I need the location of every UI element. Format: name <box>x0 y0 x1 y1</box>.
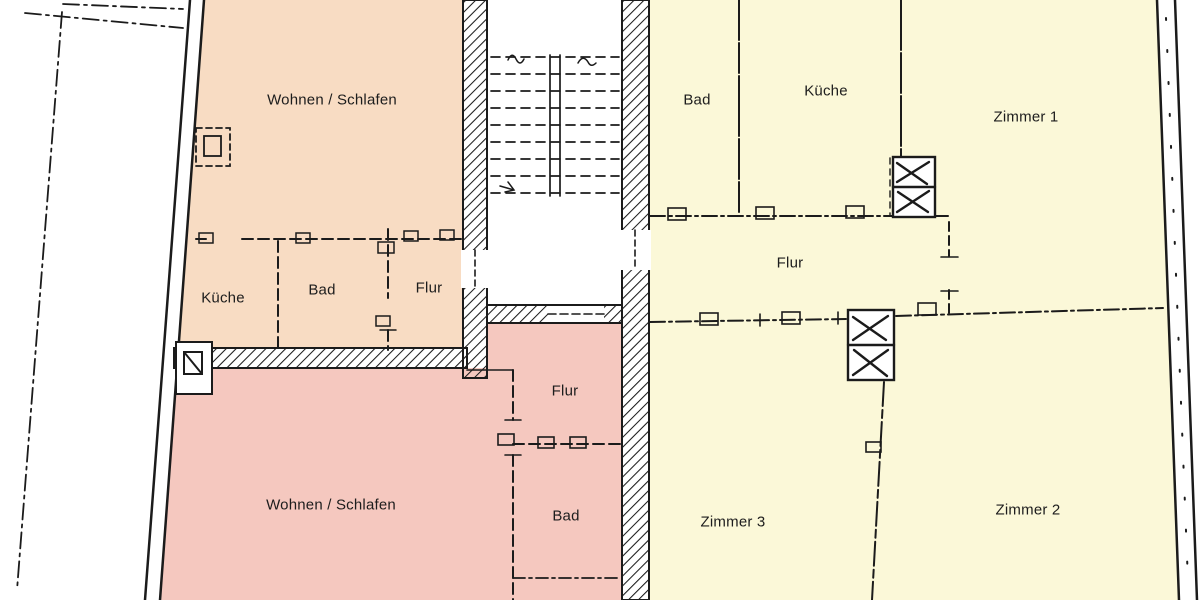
room-label-zimmer-1: Zimmer 1 <box>994 109 1059 126</box>
room-label-kueche-right: Küche <box>804 83 848 100</box>
room-label-wohnen-schlafen-bottom: Wohnen / Schlafen <box>266 497 396 514</box>
floor-plan: Wohnen / Schlafen Küche Bad Flur Wohnen … <box>0 0 1200 600</box>
room-label-flur-right: Flur <box>777 255 804 272</box>
apartment-right-area <box>649 0 1179 600</box>
room-label-bad-bottom: Bad <box>552 508 579 525</box>
room-label-wohnen-schlafen-left: Wohnen / Schlafen <box>267 92 397 109</box>
ventilation-shaft-icon-flur <box>848 310 894 380</box>
left-shaft-icon <box>176 342 212 394</box>
room-label-bad-right: Bad <box>683 92 710 109</box>
room-label-zimmer-3: Zimmer 3 <box>701 514 766 531</box>
room-label-kueche-left: Küche <box>201 290 245 307</box>
room-label-bad-left: Bad <box>308 282 335 299</box>
room-label-flur-left: Flur <box>416 280 443 297</box>
ventilation-shaft-icon-kueche <box>890 157 935 217</box>
room-label-flur-bottom: Flur <box>552 383 579 400</box>
room-label-zimmer-2: Zimmer 2 <box>996 502 1061 519</box>
